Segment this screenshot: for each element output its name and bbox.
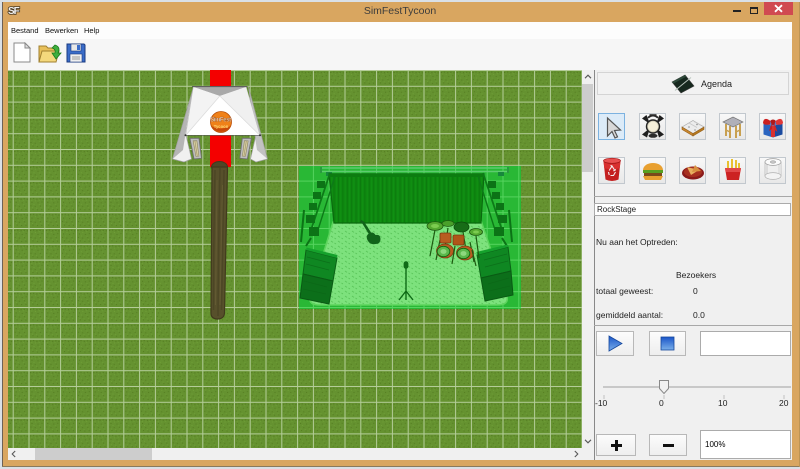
svg-text:SF: SF: [8, 6, 20, 17]
svg-text:SimFest: SimFest: [210, 118, 231, 124]
svg-text:Agenda: Agenda: [701, 79, 732, 89]
svg-text:Tycoon: Tycoon: [214, 124, 229, 129]
